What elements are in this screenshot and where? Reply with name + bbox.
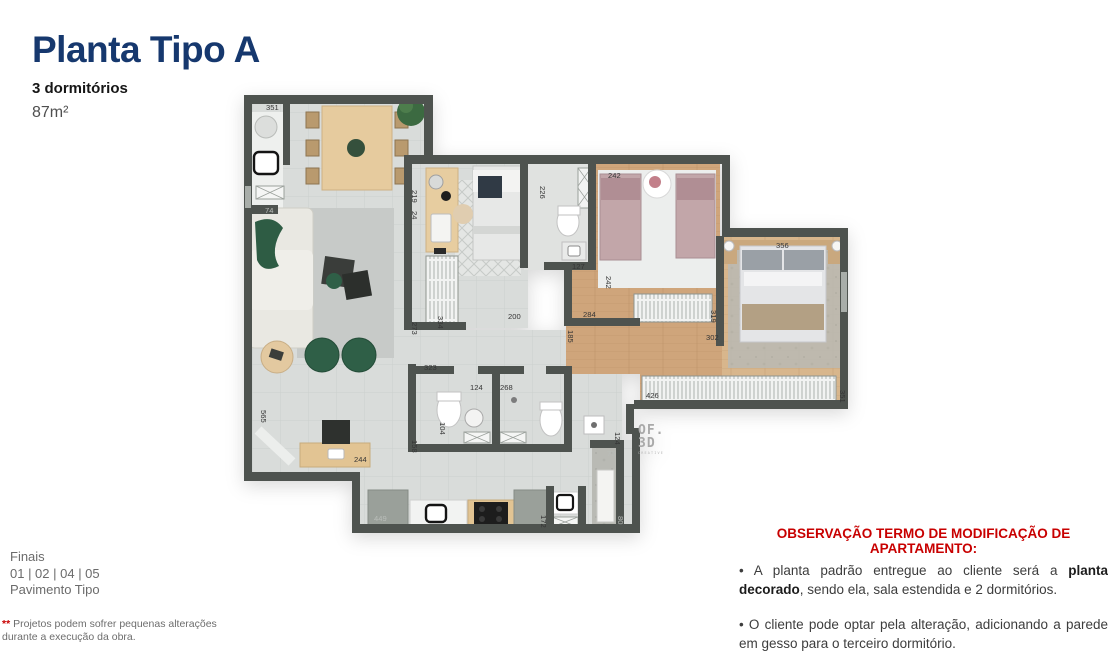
- bedroom1-bed: [473, 166, 525, 260]
- bedroom1-ottoman: [453, 204, 473, 224]
- desk-chair: [322, 420, 350, 444]
- page-title: Planta Tipo A: [32, 30, 260, 71]
- renderer-logo: OF. 3D CREATIVE: [638, 423, 664, 455]
- dimension-label: 242: [608, 171, 621, 180]
- table-plant: [347, 139, 365, 157]
- dimension-label: 449: [374, 514, 387, 523]
- dimension-label: 172: [539, 515, 548, 528]
- dimension-label: 284: [583, 310, 596, 319]
- dimension-label: 200: [508, 312, 521, 321]
- observation-bullet-1: • A planta padrão entregue ao cliente se…: [739, 562, 1108, 599]
- dimension-label: 219: [410, 190, 419, 203]
- logo-line2: 3D: [638, 436, 656, 451]
- dimension-label: 319: [709, 310, 718, 323]
- observation-block: OBSERVAÇÃO TERMO DE MODIFICAÇÃO DE APART…: [739, 526, 1108, 654]
- dimension-label: 334: [436, 316, 445, 329]
- entry-door: [597, 470, 614, 522]
- dimension-label: 124: [470, 383, 483, 392]
- master-closet: [642, 376, 836, 402]
- pouf: [342, 338, 376, 372]
- finais-label: Finais: [10, 549, 100, 566]
- subtitle-bedrooms: 3 dormitórios: [32, 80, 260, 97]
- dimension-label: 323: [424, 363, 437, 372]
- finais-units: 01 | 02 | 04 | 05: [10, 566, 100, 583]
- dimension-label: 185: [566, 330, 575, 343]
- pouf: [305, 338, 339, 372]
- dimension-label: 426: [646, 391, 659, 400]
- footnote-asterisks: **: [2, 618, 10, 630]
- service-sink: [254, 152, 278, 174]
- dimension-label: 127: [572, 262, 585, 271]
- dimension-label: 351: [266, 103, 279, 112]
- sofa: [249, 208, 313, 348]
- dimension-label: 565: [259, 410, 268, 423]
- water-heater: [255, 116, 277, 138]
- observation-heading: OBSERVAÇÃO TERMO DE MODIFICAÇÃO DE APART…: [739, 526, 1108, 556]
- dimension-label: 80: [616, 516, 625, 524]
- footnote: ** Projetos podem sofrer pequenas altera…: [2, 618, 242, 644]
- dimension-label: 158: [410, 440, 419, 453]
- header: Planta Tipo A 3 dormitórios 87m²: [32, 30, 260, 122]
- observation-bullet-2: • O cliente pode optar pela alteração, a…: [739, 616, 1108, 653]
- dimension-label: 268: [500, 383, 513, 392]
- master-bed: [722, 240, 844, 342]
- dimension-label: 24: [410, 211, 419, 219]
- footnote-text: Projetos podem sofrer pequenas alteraçõe…: [2, 618, 217, 643]
- dimension-label: 273: [410, 322, 419, 335]
- dimension-label: 244: [354, 455, 367, 464]
- dimension-label: 351: [838, 390, 847, 403]
- finais-block: Finais 01 | 02 | 04 | 05 Pavimento Tipo: [10, 549, 100, 599]
- floor-plan: OF. 3D CREATIVE 351742192422624235612724…: [238, 93, 853, 543]
- area-label: 87m²: [32, 104, 260, 122]
- dimension-label: 302: [706, 333, 719, 342]
- bedroom2-closet: [634, 294, 712, 322]
- logo-sub: CREATIVE: [638, 451, 664, 455]
- dimension-label: 356: [776, 241, 789, 250]
- dimension-label: 76: [607, 449, 615, 458]
- dimension-label: 104: [438, 422, 447, 435]
- dimension-label: 124: [613, 432, 622, 445]
- dimension-label: 74: [265, 206, 273, 215]
- finais-floor: Pavimento Tipo: [10, 582, 100, 599]
- cooktop: [474, 502, 508, 525]
- dimension-label: 226: [538, 186, 547, 199]
- dimension-label: 242: [604, 276, 613, 289]
